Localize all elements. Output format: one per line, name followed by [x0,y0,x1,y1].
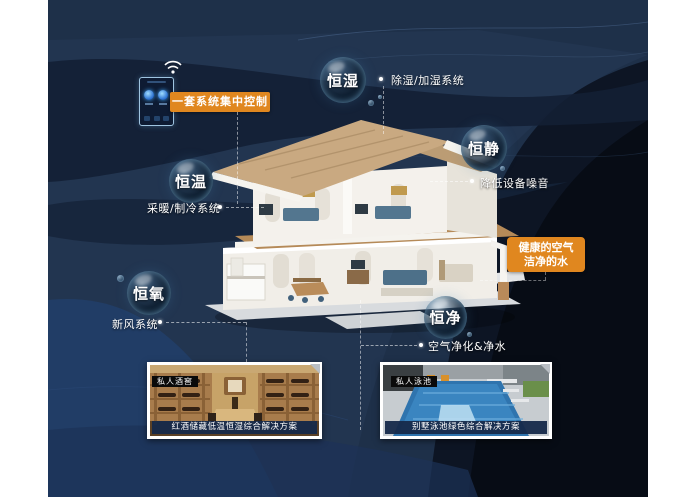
pool-card-tag: 私人泳池 [391,376,437,387]
connector-line [226,207,264,208]
connector-line [246,322,247,362]
connector-dot [158,320,162,324]
control-knob-icon [144,90,154,100]
highlight-line2: 洁净的水 [507,255,585,269]
mini-bubble [368,100,374,106]
pool-card: 私人泳池 别墅泳池绿色综合解决方案 [380,362,552,439]
mini-bubble [117,275,124,282]
bubble-hengwen: 恒温 [169,159,213,203]
phone-bottom-menu [144,116,169,121]
knob-label [159,103,167,105]
connector-line [360,300,361,430]
mini-bubble [500,166,505,171]
bubble-hengjing2-label: 恒净 [429,307,461,328]
corner-fold-icon [310,364,320,374]
connector-line [545,272,546,280]
phone-status-bar [147,81,166,83]
connector-line [383,86,384,134]
smart-control-phone [139,77,174,126]
connector-dot [419,343,423,347]
bubble-hengyang: 恒氧 [127,271,171,315]
connector-dot [379,77,383,81]
hengwen-desc-label: 采暖/制冷系统 [147,200,220,216]
bubble-hengyang-label: 恒氧 [133,283,165,304]
connector-line [166,322,246,323]
connector-dot [470,179,474,183]
central-control-label: 一套系统集中控制 [170,92,270,112]
bubble-hengjing: 恒静 [461,125,507,171]
connector-line [480,280,546,281]
hengjing-desc-label: 降低设备噪音 [480,175,549,191]
bubble-hengjing2: 恒净 [424,296,467,339]
connector-line [237,112,238,204]
mini-bubble [378,95,382,99]
bubble-hengshi: 恒湿 [320,57,366,103]
bubble-hengshi-label: 恒湿 [327,70,359,91]
bubble-hengwen-label: 恒温 [175,171,207,192]
wifi-icon [163,58,183,74]
wine-card-tag: 私人酒窖 [152,376,198,387]
hengjing2-desc-label: 空气净化&净水 [428,338,506,354]
connector-line [361,345,417,346]
corner-fold-icon [540,364,550,374]
healthy-air-water-highlight: 健康的空气 洁净的水 [507,237,585,272]
knob-label [145,103,153,105]
highlight-line1: 健康的空气 [507,241,585,255]
wine-cellar-card: 私人酒窖 红酒储藏低温恒湿综合解决方案 [147,362,322,439]
wine-card-caption: 红酒储藏低温恒湿综合解决方案 [152,421,317,434]
connector-dot [218,205,222,209]
connector-line [430,181,468,182]
pool-card-caption: 别墅泳池绿色综合解决方案 [385,421,547,434]
infographic-stage: 一套系统集中控制 恒湿 除湿/加湿系统 恒静 降低设备噪音 恒温 采暖/制冷系统… [0,0,700,497]
hengyang-desc-label: 新风系统 [112,316,158,332]
mini-bubble [467,332,472,337]
bubble-hengjing-label: 恒静 [468,138,500,159]
control-knob-icon [158,90,168,100]
hengshi-desc-label: 除湿/加湿系统 [391,72,464,88]
